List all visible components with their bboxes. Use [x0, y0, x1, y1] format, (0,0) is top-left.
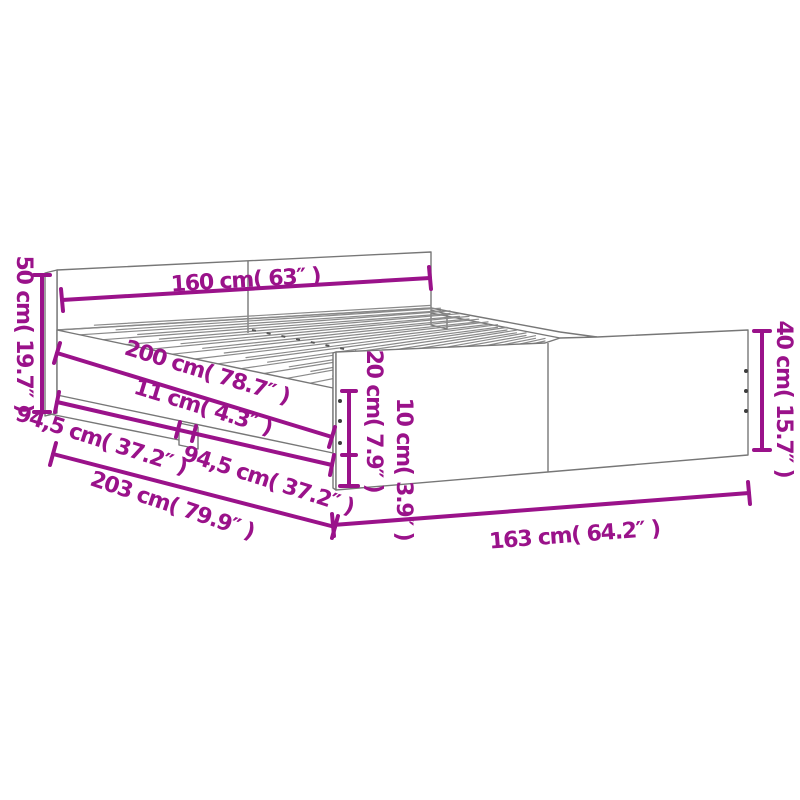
- label-headboard-height: 50 cm( 19.7″ ): [11, 256, 36, 413]
- bed-frame-dimension-drawing: 160 cm( 63″ ) 50 cm( 19.7″ ) 200 cm( 78.…: [0, 0, 800, 800]
- dim-footboard-height: [754, 331, 770, 450]
- label-floor-clearance: 10 cm( 3.9″ ): [391, 398, 416, 541]
- label-footboard-height: 40 cm( 15.7″ ): [771, 321, 796, 478]
- label-side-rail-height: 20 cm( 7.9″ ): [361, 350, 386, 493]
- label-footboard-width: 163 cm( 64.2″ ): [488, 516, 661, 554]
- headboard-left-edge: [45, 270, 57, 416]
- far-rail-foot-joint: [560, 332, 597, 337]
- diagram-stage: 160 cm( 63″ ) 50 cm( 19.7″ ) 200 cm( 78.…: [0, 0, 800, 800]
